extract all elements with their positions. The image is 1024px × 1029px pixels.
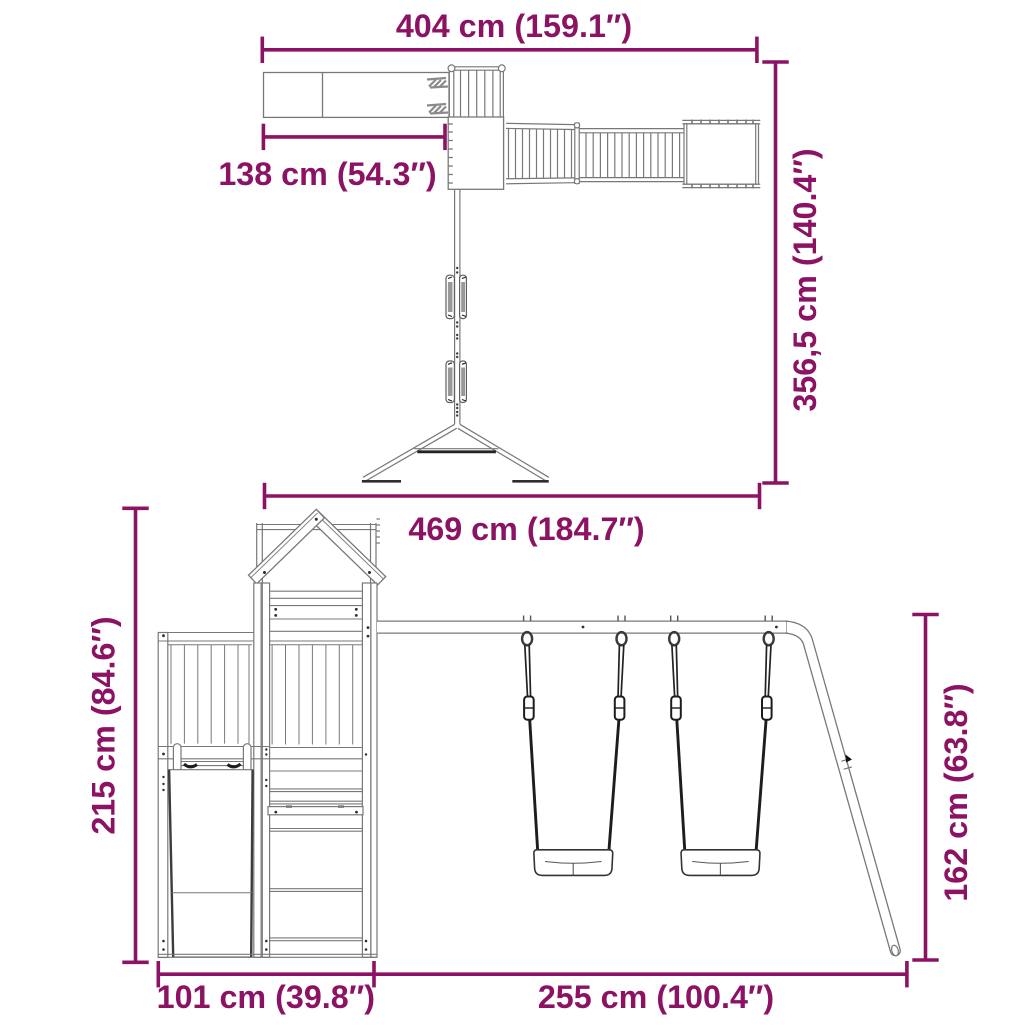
svg-text:101 cm (39.8″): 101 cm (39.8″): [157, 979, 375, 1015]
svg-text:356,5 cm (140.4″): 356,5 cm (140.4″): [787, 148, 823, 411]
svg-text:469 cm (184.7″): 469 cm (184.7″): [408, 511, 644, 547]
svg-text:215 cm (84.6″): 215 cm (84.6″): [86, 616, 122, 834]
svg-text:255 cm (100.4″): 255 cm (100.4″): [538, 979, 774, 1015]
svg-text:404 cm (159.1″): 404 cm (159.1″): [396, 8, 632, 44]
svg-text:138 cm (54.3″): 138 cm (54.3″): [218, 156, 436, 192]
svg-text:162 cm (63.8″): 162 cm (63.8″): [938, 683, 974, 901]
